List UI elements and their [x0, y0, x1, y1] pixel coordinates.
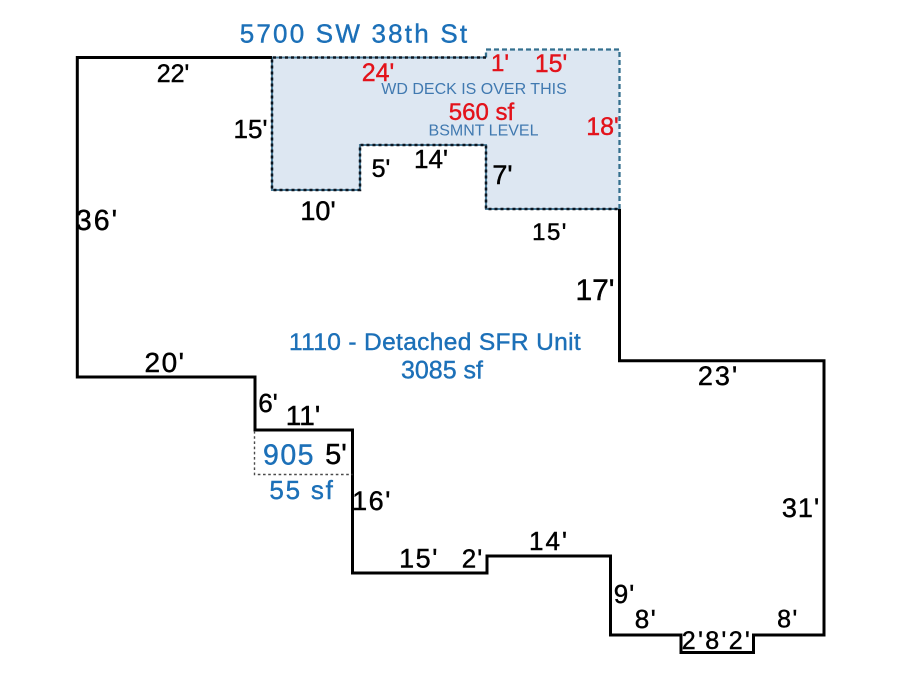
svg-text:15': 15': [399, 544, 439, 574]
svg-text:WD DECK IS OVER THIS: WD DECK IS OVER THIS: [381, 81, 567, 98]
svg-text:16': 16': [352, 486, 392, 516]
svg-text:2'8'2': 2'8'2': [682, 627, 752, 655]
svg-text:14': 14': [414, 144, 448, 174]
svg-text:24': 24': [362, 59, 395, 87]
svg-text:5': 5': [325, 439, 347, 471]
svg-text:31': 31': [782, 493, 820, 523]
svg-text:15': 15': [535, 50, 568, 78]
svg-text:9': 9': [614, 579, 635, 609]
svg-text:8': 8': [777, 606, 799, 634]
svg-text:14': 14': [529, 526, 569, 556]
svg-text:2': 2': [462, 544, 483, 574]
svg-text:15': 15': [234, 114, 268, 144]
svg-text:17': 17': [575, 274, 614, 307]
svg-text:11': 11': [286, 400, 320, 431]
svg-text:BSMNT LEVEL: BSMNT LEVEL: [429, 123, 539, 140]
svg-text:1': 1': [491, 50, 509, 77]
svg-text:15': 15': [532, 219, 568, 246]
svg-text:905: 905: [263, 440, 315, 472]
svg-text:22': 22': [157, 60, 190, 88]
svg-text:5': 5': [372, 155, 391, 183]
svg-text:23': 23': [698, 361, 739, 391]
svg-text:36': 36': [76, 205, 119, 237]
svg-text:8': 8': [635, 604, 657, 634]
svg-text:5700 SW 38th St: 5700 SW 38th St: [240, 19, 470, 49]
svg-text:10': 10': [300, 196, 335, 226]
svg-text:20': 20': [145, 347, 186, 378]
svg-text:55 sf: 55 sf: [269, 475, 334, 505]
svg-text:6': 6': [258, 388, 277, 418]
svg-text:1110 - Detached SFR Unit: 1110 - Detached SFR Unit: [289, 329, 581, 356]
svg-text:3085 sf: 3085 sf: [401, 357, 483, 385]
svg-text:7': 7': [492, 160, 512, 190]
svg-text:18': 18': [586, 113, 619, 141]
